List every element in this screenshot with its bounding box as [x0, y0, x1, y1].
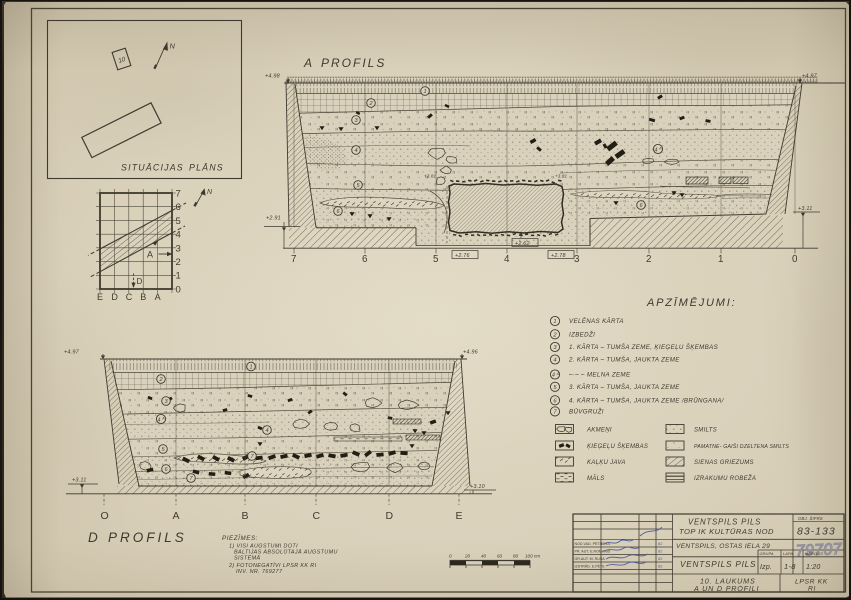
svg-text:3: 3 [176, 243, 181, 254]
svg-text:4: 4 [354, 148, 357, 154]
svg-text:A: A [161, 417, 165, 421]
svg-text:E: E [456, 510, 463, 522]
svg-text:80: 80 [513, 554, 519, 559]
svg-text:PROFILS: PROFILS [108, 530, 187, 545]
svg-text:N: N [170, 42, 176, 51]
svg-text:82: 82 [658, 564, 663, 569]
svg-text:SITUĀCIJAS: SITUĀCIJAS [121, 163, 184, 173]
svg-text:A: A [303, 56, 314, 70]
svg-text:SMILTS: SMILTS [694, 428, 717, 434]
svg-text:B: B [140, 292, 146, 302]
svg-text:2. KĀRTA – TUMŠA, JAUKTA ZEME: 2. KĀRTA – TUMŠA, JAUKTA ZEME [568, 357, 680, 364]
svg-text:IZSTRĀD. E.PĒTE: IZSTRĀD. E.PĒTE [575, 565, 606, 569]
svg-text:+4.96: +4.96 [463, 350, 479, 356]
svg-text:A: A [173, 510, 180, 522]
svg-text:1: 1 [249, 365, 252, 371]
svg-text:7: 7 [176, 188, 181, 199]
svg-text:1: 1 [176, 271, 181, 282]
svg-text:+4.98: +4.98 [265, 74, 281, 80]
svg-text:B: B [242, 510, 249, 522]
svg-text:4. KĀRTA – TUMŠA, JAUKTA ZEME: 4. KĀRTA – TUMŠA, JAUKTA ZEME /BRŪNGANA/ [569, 398, 725, 405]
svg-text:A: A [658, 147, 662, 151]
svg-text:PROFILS: PROFILS [321, 56, 386, 70]
svg-text:A: A [556, 372, 560, 376]
svg-text:1:20: 1:20 [806, 564, 820, 571]
svg-text:20: 20 [464, 554, 471, 559]
svg-text:1-8: 1-8 [784, 562, 796, 571]
svg-text:IZRAKUMU ROBEŽA: IZRAKUMU ROBEŽA [694, 474, 756, 482]
svg-text:APZĪMĒJUMI:: APZĪMĒJUMI: [646, 297, 736, 309]
svg-text:KAĻĶU JAVA: KAĻĶU JAVA [587, 460, 626, 466]
svg-text:TOP IK KULTŪRAS NOD: TOP IK KULTŪRAS NOD [679, 527, 774, 536]
svg-text:D: D [88, 530, 100, 545]
svg-text:82: 82 [658, 549, 663, 554]
svg-text:4: 4 [158, 417, 161, 423]
svg-text:1: 1 [553, 319, 556, 325]
svg-text:+3.81: +3.81 [555, 174, 567, 179]
svg-text:BŪVGRUŽI: BŪVGRUŽI [569, 408, 604, 416]
svg-text:+3.10: +3.10 [470, 484, 486, 490]
svg-text:1: 1 [718, 254, 723, 265]
svg-text:A: A [147, 250, 153, 260]
svg-text:2: 2 [646, 254, 651, 265]
svg-text:3. KĀRTA – TUMŠA, JAUKTA ZEME: 3. KĀRTA – TUMŠA, JAUKTA ZEME [569, 384, 680, 391]
svg-text:4: 4 [655, 147, 658, 153]
svg-text:IZBEDŽI: IZBEDŽI [569, 331, 595, 339]
svg-text:D: D [111, 292, 118, 302]
svg-text:83-133: 83-133 [797, 526, 836, 538]
svg-text:5: 5 [433, 254, 439, 265]
svg-text:O: O [101, 510, 109, 522]
svg-text:BALTIJAS ABSOLŪTAJĀ AUGSTUMU: BALTIJAS ABSOLŪTAJĀ AUGSTUMU [234, 549, 338, 556]
svg-text:D: D [386, 510, 394, 522]
svg-text:0: 0 [792, 254, 798, 265]
svg-text:60: 60 [497, 554, 503, 559]
svg-text:GRUPA: GRUPA [760, 551, 774, 556]
svg-text:6: 6 [362, 254, 368, 265]
svg-text:+2.76: +2.76 [455, 253, 470, 259]
svg-text:ĶIEĢEĻU ŠĶEMBAS: ĶIEĢEĻU ŠĶEMBAS [587, 443, 648, 450]
svg-text:2) FOTONEGATĪVI LPSR KK RI: 2) FOTONEGATĪVI LPSR KK RI [228, 562, 317, 569]
svg-text:3: 3 [574, 254, 580, 265]
svg-text:VENTSPILS, OSTAS IELA 29: VENTSPILS, OSTAS IELA 29 [676, 543, 770, 550]
svg-text:4: 4 [552, 373, 555, 379]
svg-text:+2.62: +2.62 [515, 241, 530, 247]
svg-text:VENTSPILS PILS: VENTSPILS PILS [688, 518, 761, 527]
svg-text:A UN D PROFILI: A UN D PROFILI [693, 584, 759, 593]
svg-text:+3.81: +3.81 [424, 174, 436, 179]
svg-text:SISTĒMĀ: SISTĒMĀ [234, 555, 260, 562]
svg-text:VENTSPILS PILS: VENTSPILS PILS [680, 560, 756, 569]
svg-text:40: 40 [481, 554, 487, 559]
svg-text:LPSR KK: LPSR KK [795, 579, 828, 586]
svg-text:PIEZĪMES:: PIEZĪMES: [222, 535, 258, 542]
svg-text:+2.78: +2.78 [551, 253, 566, 259]
svg-text:+3.11: +3.11 [798, 206, 813, 212]
svg-text:4: 4 [504, 254, 510, 265]
svg-text:SIENAS GRIEZUMS: SIENAS GRIEZUMS [694, 460, 754, 466]
svg-text:D: D [137, 277, 143, 286]
svg-text:+4.97: +4.97 [64, 350, 80, 356]
svg-text:A: A [155, 292, 161, 302]
svg-text:NOD.VAD. PĒTNIEKS: NOD.VAD. PĒTNIEKS [575, 542, 611, 546]
svg-text:RI: RI [808, 586, 816, 593]
svg-text:Izp.: Izp. [760, 564, 772, 571]
svg-text:100 cm: 100 cm [525, 554, 540, 559]
svg-text:E: E [97, 292, 103, 302]
svg-text:OBJ. ŠIFRS: OBJ. ŠIFRS [798, 516, 823, 521]
svg-text:GR.AUT. M. RUŠA: GR.AUT. M. RUŠA [575, 556, 606, 561]
svg-text:2: 2 [176, 257, 181, 268]
svg-text:PLĀNS: PLĀNS [189, 163, 224, 173]
svg-text:1: 1 [423, 89, 426, 95]
svg-text:VELĒNAS KĀRTA: VELĒNAS KĀRTA [569, 318, 624, 325]
svg-text:LAPA: LAPA [783, 551, 793, 556]
svg-text:+4.97: +4.97 [802, 74, 818, 80]
svg-text:0: 0 [176, 284, 181, 295]
svg-text:AKMEŅI: AKMEŅI [586, 428, 612, 434]
svg-text:MĀLS: MĀLS [587, 475, 605, 482]
svg-text:1. KĀRTA – TUMŠA ZEME, ĶIEĢEĻU: 1. KĀRTA – TUMŠA ZEME, ĶIEĢEĻU ŠĶEMBAS [569, 344, 719, 351]
svg-text:C: C [126, 292, 133, 302]
svg-text:0: 0 [449, 554, 452, 559]
svg-text:MĒROGS: MĒROGS [805, 551, 823, 556]
svg-text:7: 7 [291, 254, 296, 265]
svg-text:PAMATNE- GAIŠI DZELTENA SMILTS: PAMATNE- GAIŠI DZELTENA SMILTS [694, 443, 789, 450]
svg-text:C: C [313, 510, 321, 522]
svg-text:5: 5 [176, 216, 181, 227]
svg-text:82: 82 [658, 541, 663, 546]
svg-text:–·– – MELNA ZEME: –·– – MELNA ZEME [568, 372, 631, 379]
svg-text:82: 82 [658, 556, 663, 561]
svg-text:4: 4 [176, 230, 181, 241]
svg-text:+2.91: +2.91 [266, 216, 281, 222]
svg-text:INV. NR. 769277: INV. NR. 769277 [236, 569, 283, 575]
svg-text:+3.11: +3.11 [72, 478, 87, 484]
svg-text:4: 4 [265, 428, 268, 434]
svg-text:4: 4 [553, 358, 556, 364]
